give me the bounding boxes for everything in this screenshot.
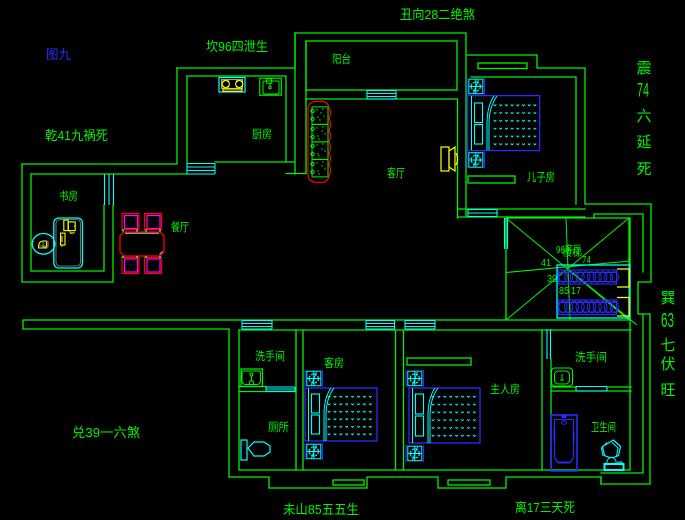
svg-text:阳台: 阳台 bbox=[332, 52, 351, 66]
svg-text:旺: 旺 bbox=[661, 382, 676, 399]
svg-text:延: 延 bbox=[637, 134, 652, 151]
svg-text:死: 死 bbox=[637, 161, 652, 178]
svg-text:17: 17 bbox=[571, 286, 581, 297]
svg-text:儿子房: 儿子房 bbox=[527, 171, 555, 184]
svg-text:41: 41 bbox=[541, 258, 551, 269]
svg-text:坎96四泄生: 坎96四泄生 bbox=[206, 39, 268, 54]
svg-text:餐厅: 餐厅 bbox=[171, 220, 189, 234]
svg-text:图九: 图九 bbox=[46, 47, 71, 62]
svg-text:兑39一六煞: 兑39一六煞 bbox=[72, 425, 140, 440]
svg-text:书房: 书房 bbox=[59, 190, 78, 203]
svg-text:洗手间: 洗手间 bbox=[575, 350, 607, 364]
svg-text:伏: 伏 bbox=[661, 356, 676, 373]
svg-text:巽: 巽 bbox=[661, 290, 676, 307]
svg-text:74: 74 bbox=[637, 81, 649, 102]
svg-text:85: 85 bbox=[559, 286, 569, 297]
svg-text:丑向28二绝煞: 丑向28二绝煞 bbox=[400, 7, 475, 22]
svg-text:厨房: 厨房 bbox=[252, 128, 272, 141]
svg-text:客厅: 客厅 bbox=[387, 166, 405, 180]
svg-text:洗手间: 洗手间 bbox=[255, 349, 285, 363]
svg-text:离17三天死: 离17三天死 bbox=[515, 500, 575, 515]
svg-text:卫生间: 卫生间 bbox=[591, 420, 616, 434]
svg-text:六: 六 bbox=[637, 108, 652, 125]
svg-text:厕所: 厕所 bbox=[268, 421, 289, 434]
svg-text:震: 震 bbox=[637, 60, 652, 77]
svg-text:楼梯: 楼梯 bbox=[562, 246, 582, 259]
svg-text:客房: 客房 bbox=[324, 356, 344, 370]
svg-text:63: 63 bbox=[661, 310, 674, 332]
svg-text:主人房: 主人房 bbox=[490, 383, 520, 396]
svg-text:未山85五五生: 未山85五五生 bbox=[283, 502, 359, 517]
svg-text:七: 七 bbox=[661, 337, 676, 354]
svg-text:乾41九祸死: 乾41九祸死 bbox=[45, 128, 108, 143]
svg-text:39: 39 bbox=[547, 274, 557, 285]
